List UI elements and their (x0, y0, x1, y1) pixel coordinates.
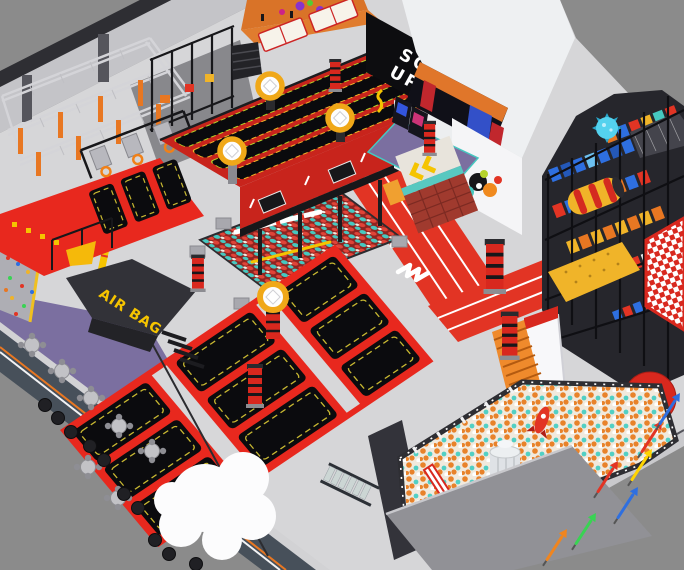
ladder-tower (329, 59, 343, 92)
ladder-tower (190, 255, 205, 292)
ladder-tower (484, 239, 507, 294)
scene-canvas: AIR BAG (0, 0, 684, 570)
ladder-tower (246, 364, 264, 408)
ladder-tower (422, 121, 436, 156)
ladder-tower (500, 312, 520, 360)
trampoline-park-render: AIR BAG (0, 0, 684, 570)
wall-pillar (22, 75, 32, 122)
